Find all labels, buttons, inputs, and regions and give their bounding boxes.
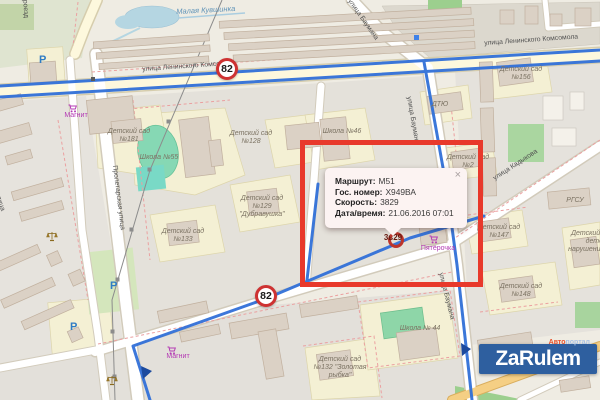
- popup-row-route: Маршрут:М51: [335, 176, 459, 187]
- popup-value-speed: 3829: [380, 197, 399, 207]
- speed-limit-value-1: 82: [221, 63, 233, 75]
- speed-limit-sign-1: 82: [216, 58, 238, 80]
- popup-value-datetime: 21.06.2016 07:01: [388, 208, 453, 218]
- popup-row-speed: Скорость:3829: [335, 197, 459, 208]
- popup-label-datetime: Дата/время:: [335, 208, 385, 218]
- popup-row-plate: Гос. номер:Х949ВА: [335, 187, 459, 198]
- speed-limit-sign-2: 82: [255, 285, 277, 307]
- logo-sub-rest: портал: [566, 339, 590, 346]
- info-popup: × Маршрут:М51 Гос. номер:Х949ВА Скорость…: [325, 168, 467, 228]
- zarulem-logo-subtitle: Автопортал: [549, 339, 590, 346]
- logo-sub-accent: Авто: [549, 339, 566, 346]
- popup-label-plate: Гос. номер:: [335, 187, 382, 197]
- map-canvas[interactable]: [0, 0, 600, 400]
- popup-value-plate: Х949ВА: [385, 187, 415, 197]
- popup-tail: [385, 228, 401, 236]
- popup-label-route: Маршрут:: [335, 176, 376, 186]
- zarulem-logo[interactable]: Автопортал ZaRulem: [479, 344, 597, 374]
- speed-limit-value-2: 82: [260, 290, 272, 302]
- map-viewport[interactable]: улица Ленинского Комсомола улица Ленинск…: [0, 0, 600, 400]
- zarulem-logo-text: ZaRulem: [479, 344, 597, 374]
- close-icon[interactable]: ×: [455, 169, 461, 181]
- popup-label-speed: Скорость:: [335, 197, 377, 207]
- popup-row-datetime: Дата/время:21.06.2016 07:01: [335, 208, 459, 219]
- popup-value-route: М51: [379, 176, 395, 186]
